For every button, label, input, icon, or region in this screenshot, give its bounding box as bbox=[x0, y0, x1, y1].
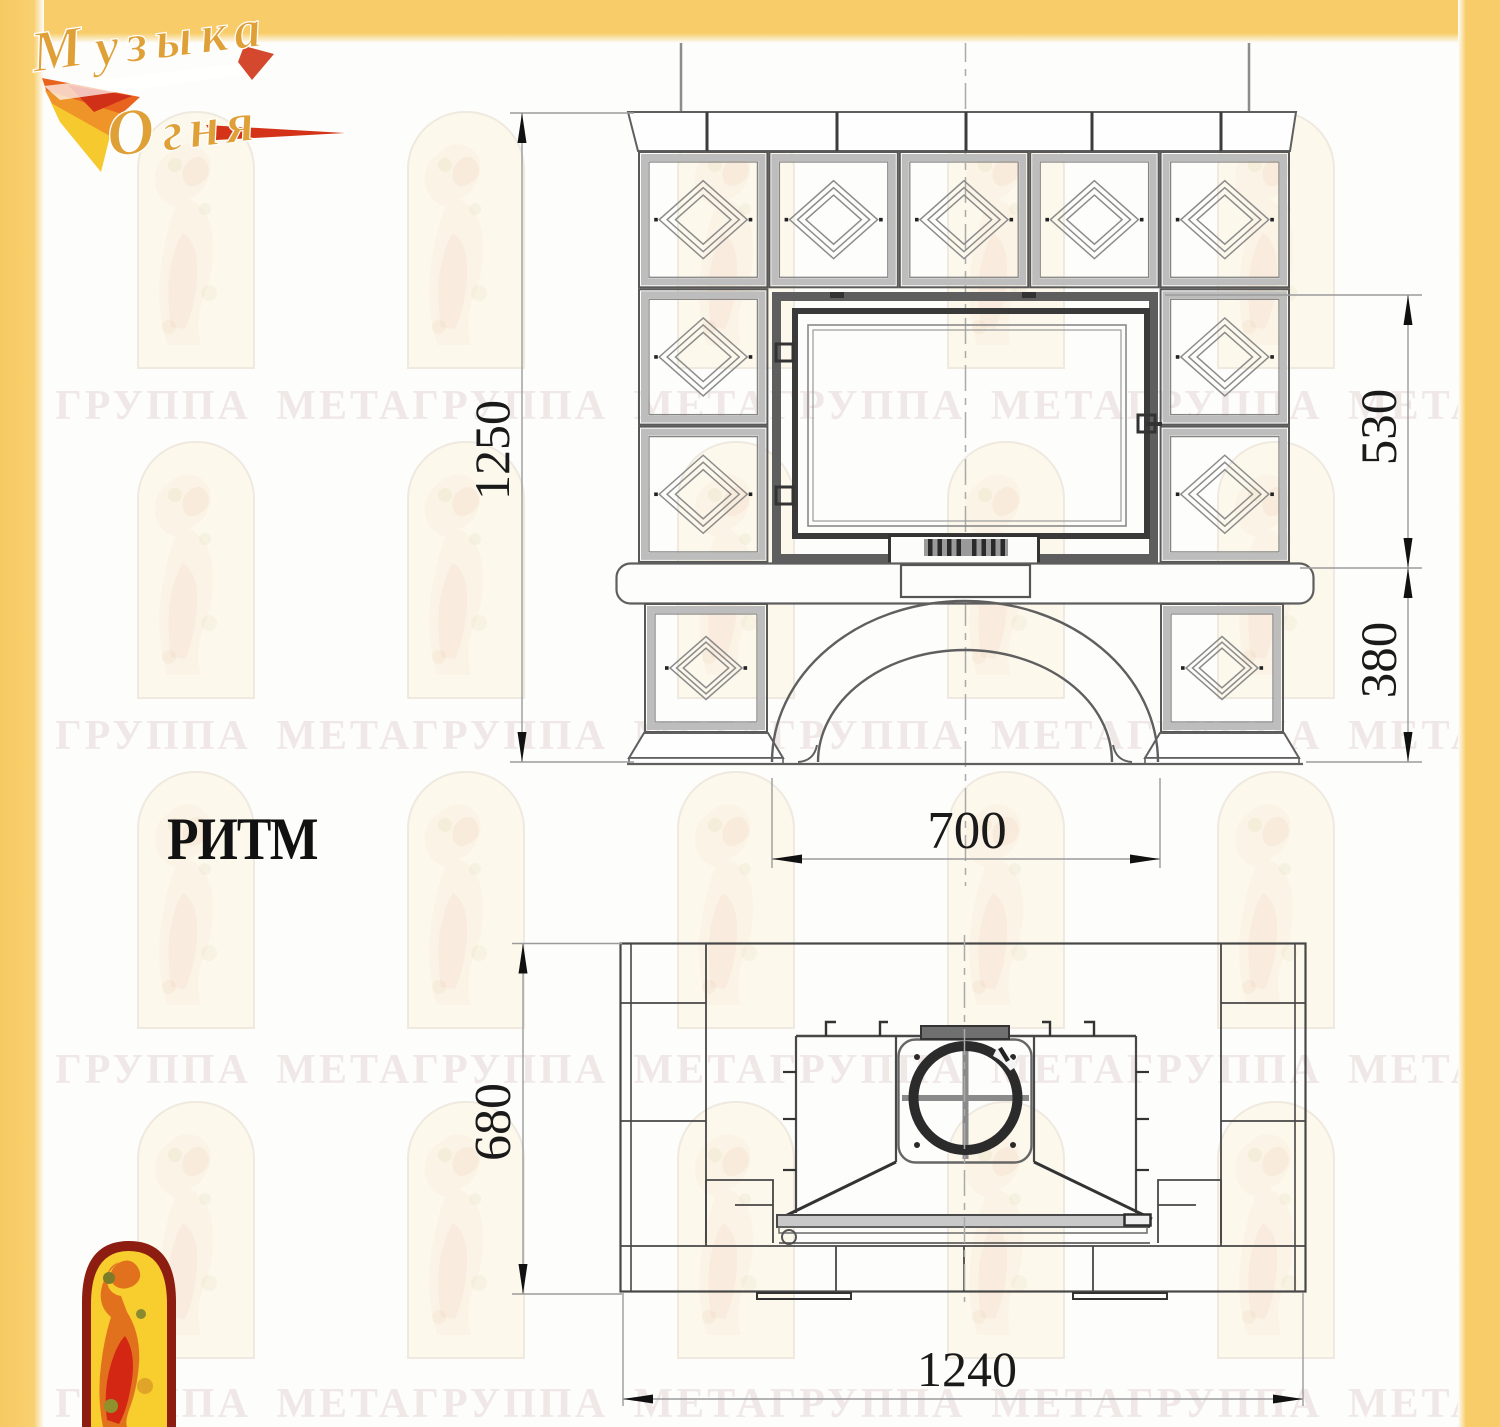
svg-text:гня: гня bbox=[158, 90, 263, 164]
svg-text:1250: 1250 bbox=[464, 400, 520, 500]
svg-text:530: 530 bbox=[1352, 389, 1408, 466]
svg-text:700: 700 bbox=[927, 802, 1007, 860]
svg-text:М: М bbox=[26, 13, 90, 85]
svg-text:380: 380 bbox=[1352, 622, 1408, 699]
svg-text:680: 680 bbox=[465, 1083, 522, 1161]
svg-text:1240: 1240 bbox=[917, 1341, 1017, 1397]
svg-text:О: О bbox=[102, 93, 159, 172]
